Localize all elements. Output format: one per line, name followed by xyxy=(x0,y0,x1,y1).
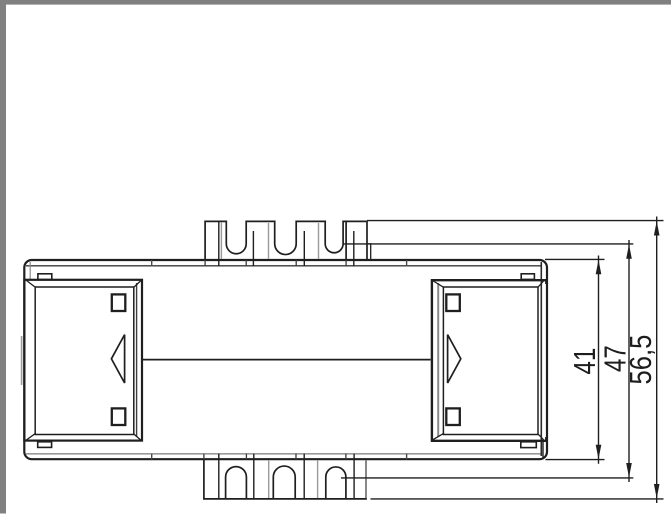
svg-text:41: 41 xyxy=(567,348,601,375)
svg-text:56,5: 56,5 xyxy=(624,335,658,385)
